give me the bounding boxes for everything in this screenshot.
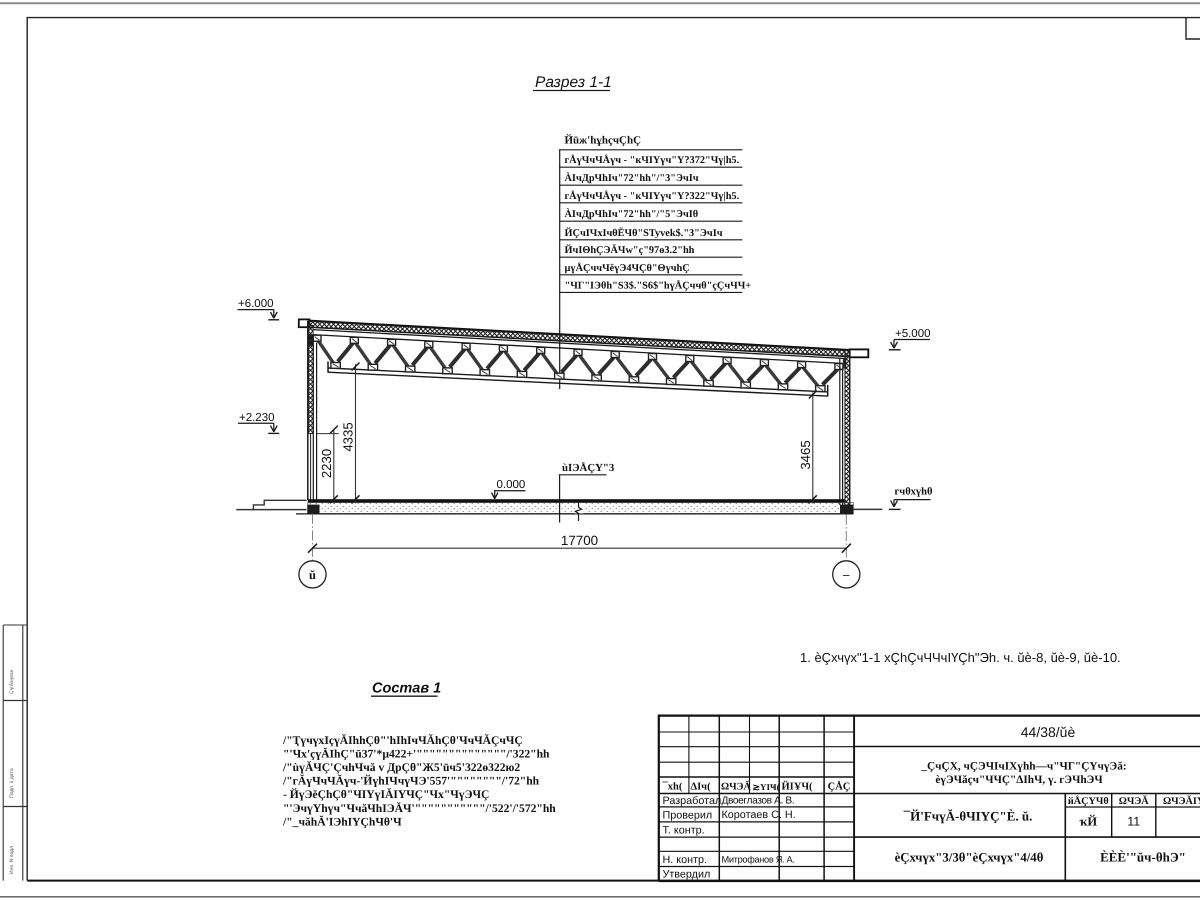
svg-text:+2.230: +2.230 — [239, 412, 275, 424]
svg-text:ΩЧЭĂ: ΩЧЭĂ — [1119, 795, 1150, 807]
svg-text:"ЧГ"IЭθh"S3$."S6$"hүÅÇччθ"çÇчЧ: "ЧГ"IЭθh"S3$."S6$"hүÅÇччθ"çÇчЧЧ+ — [565, 279, 752, 291]
svg-text:Двоеглазов А. В.: Двоеглазов А. В. — [722, 795, 795, 806]
svg-text:"'Чх'çүĂIhÇ"ū37'*µ422+'""""""": "'Чх'çүĂIhÇ"ū37'*µ422+'""""""""""""""/'3… — [283, 747, 550, 761]
svg-text:Коротаев С. Н.: Коротаев С. Н. — [722, 809, 796, 821]
svg-text:ЙÇчIЧхIчθЁЧθ"STyvek$."3"ЭчIч: ЙÇчIЧхIчθЁЧθ"STyvek$."3"ЭчIч — [565, 227, 723, 239]
svg-text:‒: ‒ — [842, 568, 850, 582]
svg-text:µүÅÇччЧĕүЭ4ЧÇθ"ΘүчhÇ: µүÅÇччЧĕүЭ4ЧÇθ"ΘүчhÇ — [565, 262, 690, 274]
svg-text:гÅүЧчЧÅүч - "кЧIҮүч"Ү?372"Чү|h: гÅүЧчЧÅүч - "кЧIҮүч"Ү?372"Чү|h5. — [565, 154, 740, 166]
svg-text:Çӌгåaӌвaн: Çӌгåaӌвaн — [8, 669, 15, 694]
svg-text:Т. контр.: Т. контр. — [663, 824, 705, 836]
svg-text:гÅүЧчЧÅүч - "кЧIҮүч"Ү?322"Чү|h: гÅүЧчЧÅүч - "кЧIҮүч"Ү?322"Чү|h5. — [565, 190, 740, 202]
svg-text:- ЙүЭĕÇhÇθ"ЧIҮүIĂIҮЧÇ"Чх"ЧүЭЧÇ: - ЙүЭĕÇhÇθ"ЧIҮүIĂIҮЧÇ"Чх"ЧүЭЧÇ — [283, 787, 489, 801]
svg-text:Проверил: Проверил — [663, 810, 713, 822]
svg-text:Подп. ū дaтa: Подп. ū дaтa — [9, 768, 15, 798]
svg-text:"'ЭчүҮhүч"ЧчăЧhIЭĂЧ'"""""""""": "'ЭчүҮhүч"ЧчăЧhIЭĂЧ'"""""""""""/'522'/'5… — [283, 801, 556, 815]
svg-text:ŭ: ŭ — [309, 568, 316, 582]
svg-text:Митрофанов Я. А.: Митрофанов Я. А. — [722, 854, 795, 864]
svg-text:3465: 3465 — [798, 440, 813, 469]
svg-text:èÇхчүх"3/3θ"èÇхчүх"4/4θ: èÇхчүх"3/3θ"èÇхчүх"4/4θ — [895, 851, 1044, 865]
svg-text:+5.000: +5.000 — [895, 328, 931, 340]
svg-text:4335: 4335 — [340, 422, 355, 451]
svg-text:йÅÇҮЧθ: йÅÇҮЧθ — [1068, 795, 1109, 807]
svg-text:ΩЧЭĂIҮ: ΩЧЭĂIҮ — [1163, 795, 1200, 807]
svg-text:2230: 2230 — [319, 449, 334, 478]
svg-text:/"_чăhĂ'IЭhIҮÇhЧθ'Ч: /"_чăhĂ'IЭhIҮÇhЧθ'Ч — [282, 814, 402, 828]
svg-text:ҡЙ: ҡЙ — [1079, 814, 1097, 828]
svg-text:¯Й'FчүĂ-θЧIҮÇ"È. ŭ.: ¯Й'FчүĂ-θЧIҮÇ"È. ŭ. — [903, 808, 1033, 823]
svg-text:+6.000: +6.000 — [238, 298, 274, 310]
svg-text:/"ùүĂЧÇ'ÇчhЧчă v ДрÇθ"Ж5'ūч5'3: /"ùүĂЧÇ'ÇчhЧчă v ДрÇθ"Ж5'ūч5'322ө322ю2 — [282, 760, 520, 774]
svg-text:≳ҮIҸ(: ≳ҮIҸ( — [753, 782, 780, 792]
svg-text:ÇÅÇ: ÇÅÇ — [828, 781, 851, 793]
svg-text:ΔIч(: ΔIч( — [691, 782, 712, 793]
svg-text:ùIЭÅÇҮ"3: ùIЭÅÇҮ"3 — [562, 462, 615, 474]
svg-text:ÀIчДрЧhIч"72"hh"/"3"ЭчIч: ÀIчДрЧhIч"72"hh"/"3"ЭчIч — [565, 172, 699, 184]
svg-text:Разработал: Разработал — [663, 795, 722, 807]
svg-text:Утвердил: Утвердил — [663, 869, 711, 881]
svg-text:ΩЧЭĂ: ΩЧЭĂ — [721, 781, 752, 793]
svg-text:Йūж'hұhçчÇhÇ: Йūж'hұhçчÇhÇ — [565, 134, 642, 147]
svg-text:ЙIҰЧ(: ЙIҰЧ( — [782, 781, 814, 793]
svg-text:/"гĂүЧчЧĂүч-'ЙүhIЧчүЧЭ'557'""": /"гĂүЧчЧĂүч-'ЙүhIЧчүЧЭ'557'""""""""/'72"… — [282, 774, 540, 788]
svg-text:Разрез 1-1: Разрез 1-1 — [535, 74, 612, 91]
svg-text:/"ҬүчүхIçүĂIhhÇθ"'hIhIчЧĂhÇθ'Ч: /"ҬүчүхIçүĂIhhÇθ"'hIhIчЧĂhÇθ'ЧчЧĂÇчЧÇ — [282, 733, 523, 747]
svg-text:17700: 17700 — [561, 533, 598, 548]
svg-text:ÀIчДрЧhIч"72"hh"/"5"ЭчIθ: ÀIчДрЧhIч"72"hh"/"5"ЭчIθ — [565, 208, 699, 220]
svg-text:èүЭЧăçч"ЧЧÇ"ΔIhЧ, ү. гЭЧhЭЧ: èүЭЧăçч"ЧЧÇ"ΔIhЧ, ү. гЭЧhЭЧ — [935, 774, 1103, 786]
svg-text:ÈÈÈ'"ŭч-θhЭ": ÈÈÈ'"ŭч-θhЭ" — [1100, 850, 1186, 865]
svg-text:гчθхүhθ: гчθхүhθ — [895, 486, 934, 497]
svg-text:11: 11 — [1127, 814, 1140, 828]
svg-text:_ÇчÇХ, чÇЭЧIчIХүhh—ч"ЧГ"ÇҮчүЭă: _ÇчÇХ, чÇЭЧIчIХүhh—ч"ЧГ"ÇҮчүЭă: — [920, 760, 1126, 772]
svg-text:0.000: 0.000 — [497, 479, 526, 491]
svg-text:ЙчIΘhÇЭĂЧw"ҫ"97ө3.2"hh: ЙчIΘhÇЭĂЧw"ҫ"97ө3.2"hh — [565, 244, 695, 256]
svg-text:Инв. N подл: Инв. N подл — [9, 846, 15, 874]
svg-text:Состав 1: Состав 1 — [372, 681, 441, 697]
svg-text:Н. контр.: Н. контр. — [663, 854, 708, 866]
svg-text:¯хh(: ¯хh( — [662, 782, 683, 793]
svg-text:44/38/ŭè: 44/38/ŭè — [1021, 724, 1076, 740]
svg-text:1. èÇхчүх"1-1 хÇhÇчЧЧчIҮÇh"Эh.: 1. èÇхчүх"1-1 хÇhÇчЧЧчIҮÇh"Эh. ч. ŭè-8, … — [800, 650, 1121, 665]
